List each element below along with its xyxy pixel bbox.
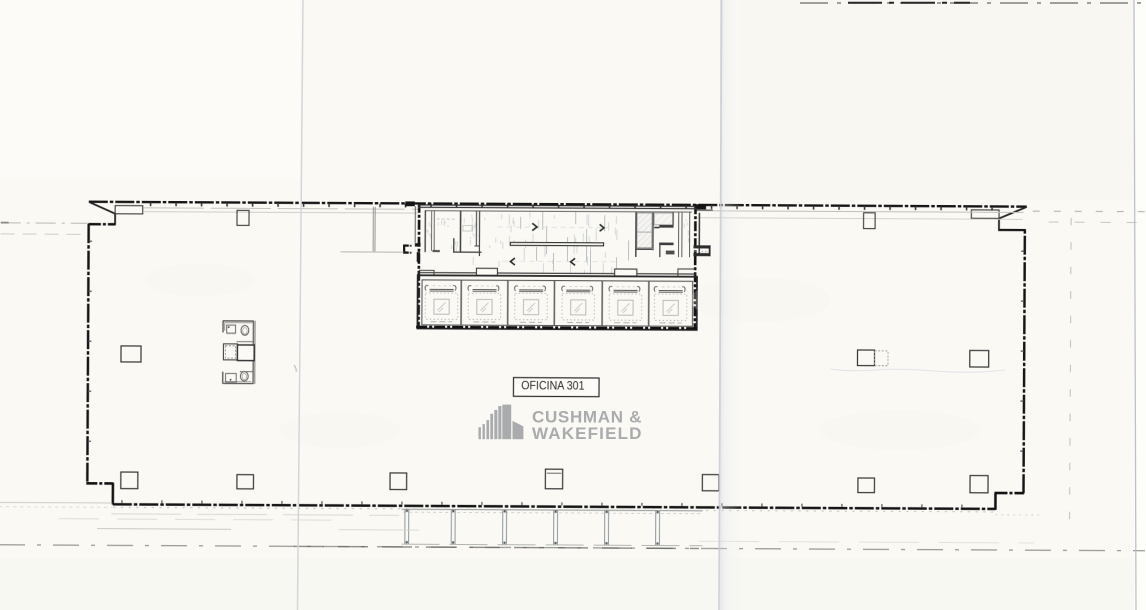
svg-text:WAKEFIELD: WAKEFIELD	[532, 424, 641, 443]
svg-text:OFICINA 301: OFICINA 301	[521, 378, 584, 392]
